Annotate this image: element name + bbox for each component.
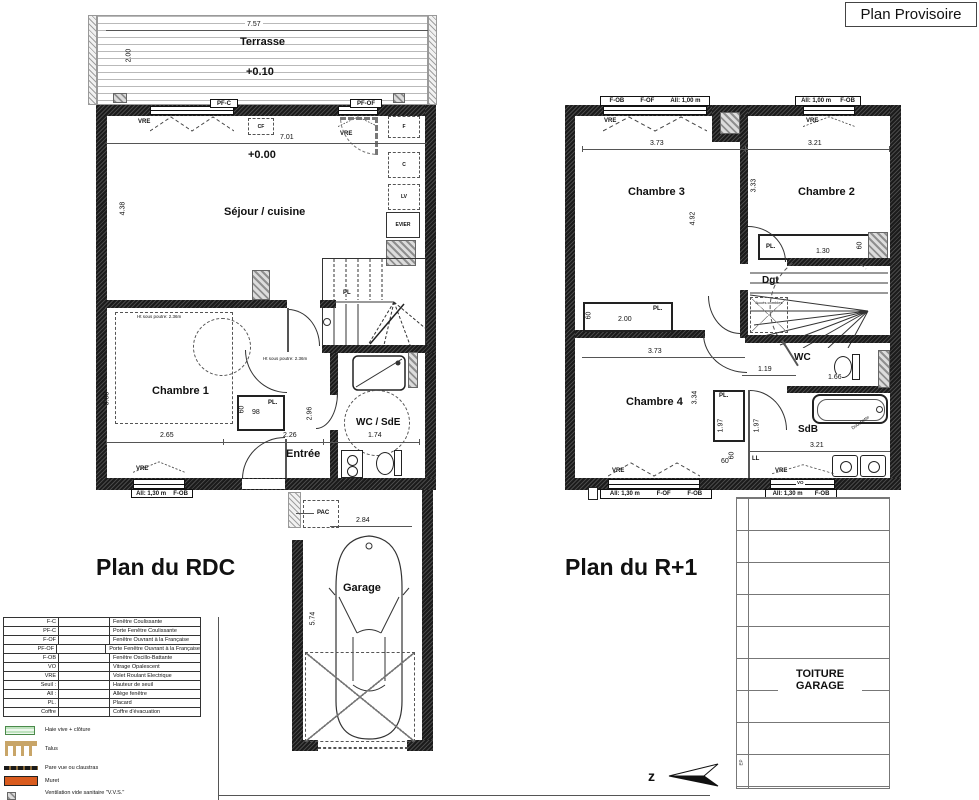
sejour-label: Séjour / cuisine: [224, 206, 305, 218]
wall-segment: [96, 300, 287, 308]
dimension: 2.26: [283, 432, 297, 439]
window-type: F-OB: [815, 491, 830, 497]
legend-spacer: [59, 618, 110, 626]
dimension: 1.97: [717, 419, 724, 433]
shutter-icon: [603, 116, 707, 132]
legend-row: PF-CPorte Fenêtre Coulissante: [4, 627, 200, 636]
cupboard-label: C: [402, 162, 406, 168]
chambre1-label: Chambre 1: [152, 385, 209, 397]
coffre-box: CF: [248, 118, 274, 135]
terrasse-deck: [97, 15, 428, 105]
door-arc: [242, 437, 285, 479]
dimension: 60: [585, 312, 592, 320]
legend-code: VO: [4, 663, 59, 671]
legend-code: PF-OF: [4, 645, 57, 653]
shutter-icon: [150, 116, 234, 132]
dimension: 3.73: [650, 140, 664, 147]
fridge-box: F: [388, 116, 420, 138]
legend-code: PL.: [4, 699, 59, 707]
dimension: 2.00: [125, 49, 132, 63]
legend-desc: Allège fenêtre: [110, 690, 200, 698]
legend-code: PF-C: [4, 627, 59, 635]
legend-desc: Porte Fenêtre Ouvrant à la Française: [106, 645, 200, 653]
terrasse-label: Terrasse: [240, 36, 285, 48]
wall-segment: [320, 300, 336, 308]
dim-line: [106, 143, 427, 144]
wall-segment: [425, 105, 436, 490]
dimension: 3.34: [691, 391, 698, 405]
toilet-tank-icon: [394, 450, 402, 476]
legend-code: VRE: [4, 672, 59, 680]
legend-spacer: [57, 645, 106, 653]
legend-row: All :Allège fenêtre: [4, 690, 200, 699]
north-label: z: [648, 768, 655, 784]
legend-desc: Porte Fenêtre Coulissante: [110, 627, 200, 635]
vre-tag: VRE: [806, 118, 818, 124]
dim-line: [582, 149, 890, 150]
window: [603, 106, 707, 115]
placard-tag: PL.: [653, 306, 662, 312]
floorplan-sheet: Plan Provisoire 7.57 Terrasse +0.10 2.00…: [0, 0, 979, 800]
drain-icon: [876, 406, 883, 413]
window-type: PF-C: [217, 101, 231, 107]
window-type-label: PF-OF: [350, 99, 382, 108]
door-arc: [708, 296, 740, 334]
wall-segment: [113, 93, 127, 103]
legend-row: PL.Placard: [4, 699, 200, 708]
wall-segment: [740, 116, 748, 264]
legend-row: F-CFenêtre Coulissante: [4, 618, 200, 627]
wall-segment: [330, 430, 338, 480]
stairs-placard-tag: PL: [343, 290, 351, 296]
toiture-line1: TOITURE: [778, 668, 862, 680]
window-type-label: F-OB F-OF All: 1,00 m: [600, 96, 710, 106]
allege-label: All: 1,00 m: [670, 98, 700, 104]
garage-label: Garage: [343, 582, 381, 594]
legend-desc: Fenêtre Coulissante: [110, 618, 200, 626]
legend-spacer: [59, 690, 110, 698]
dimension: 3.21: [808, 140, 822, 147]
wall-segment: [96, 105, 436, 116]
legend-code: Coffre: [4, 708, 59, 716]
sejour-level: +0.00: [248, 149, 276, 161]
toilet-tank-icon: [852, 354, 860, 380]
dimension: 2.84: [356, 517, 370, 524]
legend-symbol-label: Haie vive + clôture: [45, 727, 90, 733]
allege-label: All: 1,30 m: [773, 491, 803, 497]
dimension: 60: [238, 406, 245, 414]
vvs-swatch-icon: [7, 792, 16, 800]
dimension: 1.19: [758, 366, 772, 373]
sink-box: EVIER: [386, 212, 420, 238]
wall-segment: [740, 290, 748, 338]
window-type: F-OB: [610, 98, 625, 104]
legend-row: VOVitrage Opalescent: [4, 663, 200, 672]
door-arc: [288, 309, 320, 346]
wall-segment: [428, 15, 437, 105]
window-type: PF-OF: [357, 101, 375, 107]
window-type: F-OF: [657, 491, 671, 497]
dimension: 2.96: [306, 407, 313, 421]
terrasse-level: +0.10: [246, 66, 274, 78]
reserved-area-outline: [305, 652, 415, 742]
legend-spacer: [59, 681, 110, 689]
dimension: 4.38: [119, 202, 126, 216]
toiture-line2: GARAGE: [778, 680, 862, 692]
legend-desc: Fenêtre Oscillo-Battante: [110, 654, 200, 662]
clearance-circle: [193, 318, 251, 376]
wall-segment: [252, 270, 270, 300]
door-arc: [340, 117, 378, 155]
washer-tag: LL: [752, 456, 759, 462]
legend-code: F-OF: [4, 636, 59, 644]
wall-segment: [565, 105, 575, 490]
vre-tag: VRE: [775, 468, 787, 474]
legend-code: All :: [4, 690, 59, 698]
dimension: 1.66: [828, 374, 842, 381]
legend-spacer: [59, 663, 110, 671]
wall-segment: [292, 540, 303, 750]
door-arc: [245, 350, 287, 393]
legend-code: F-OB: [4, 654, 59, 662]
placard-tag: PL.: [268, 400, 277, 406]
ep-tag: EP: [739, 759, 744, 765]
downspout-icon: [588, 487, 598, 500]
window-type: F-OB: [687, 491, 702, 497]
window-type-label: All: 1,30 m F-OF F-OB: [600, 489, 712, 499]
knob-icon: [347, 466, 358, 477]
legend-code: F-C: [4, 618, 59, 626]
dimension: 1.30: [816, 248, 830, 255]
legend-spacer: [59, 708, 110, 716]
legend-row: PF-OFPorte Fenêtre Ouvrant à la Français…: [4, 645, 200, 654]
plan-provisoire-stamp: Plan Provisoire: [845, 2, 977, 27]
wc-label: WC: [794, 352, 811, 363]
dimension: 2.00: [618, 316, 632, 323]
dimension: 7.01: [278, 134, 296, 141]
legend-symbol-label: Muret: [45, 778, 59, 784]
window: [608, 479, 700, 489]
dim-tick: [323, 439, 324, 445]
wall-segment: [745, 335, 890, 343]
door-arc: [316, 393, 338, 429]
bathtub-icon: [812, 394, 888, 424]
dimension: 2.65: [160, 432, 174, 439]
toilet-icon: [376, 452, 394, 475]
north-arrow-icon: [668, 762, 720, 788]
dim-tick: [223, 439, 224, 445]
coffre-label: CF: [258, 124, 265, 130]
vo-tag: VO: [796, 480, 805, 485]
wall-segment: [393, 93, 405, 103]
legend-desc: Coffre d'évacuation: [110, 708, 200, 716]
window-type: F-OB: [840, 98, 855, 104]
talus-teeth-icon: [5, 746, 37, 756]
leader-line: [296, 513, 314, 514]
wall-segment: [288, 492, 301, 528]
knob-icon: [347, 455, 358, 466]
dim-line: [748, 451, 890, 452]
dim-line: [106, 30, 428, 31]
dishwasher-label: LV: [401, 194, 407, 200]
door-opening: [242, 479, 285, 489]
basin-icon: [840, 461, 852, 473]
cupboard-box: C: [388, 152, 420, 178]
entree-label: Entrée: [286, 448, 320, 460]
dim-line: [582, 357, 745, 358]
wcsde-label: WC / SdE: [356, 417, 400, 428]
window: [803, 106, 855, 115]
washing-machine-icon: [341, 450, 363, 478]
window-type: F-OB: [173, 491, 188, 497]
dimension: 5.74: [309, 612, 316, 626]
legend-row: VREVolet Roulant Electrique: [4, 672, 200, 681]
vre-tag: VRE: [138, 119, 150, 125]
attic-access-label: Accès combles: [752, 300, 786, 305]
chambre3-label: Chambre 3: [628, 186, 685, 198]
door-arc: [703, 334, 747, 373]
pac-label: PAC: [317, 510, 329, 516]
window: [133, 479, 185, 489]
legend-spacer: [59, 672, 110, 680]
chambre2-label: Chambre 2: [798, 186, 855, 198]
garage-roof: [748, 497, 890, 789]
r1-title: Plan du R+1: [565, 554, 697, 581]
allege-label: All: 1,00 m: [801, 98, 831, 104]
legend-symbol-label: Ventilation vide sanitaire "V.V.S.": [45, 790, 135, 796]
dim-tick: [745, 146, 746, 152]
dimension: 7.57: [245, 21, 263, 28]
sink-icon: [832, 455, 858, 477]
hedge-swatch-icon: [5, 726, 35, 735]
vre-tag: VRE: [136, 466, 148, 472]
legend-table: F-CFenêtre Coulissante PF-CPorte Fenêtre…: [3, 617, 201, 717]
allege-label: All: 1,30 m: [136, 491, 166, 497]
wall-segment: [878, 350, 890, 388]
staircase-icon: [322, 258, 426, 346]
wall-segment: [322, 345, 436, 353]
legend-symbol-label: Talus: [45, 746, 58, 752]
window-type: F-OF: [640, 98, 654, 104]
legend-desc: Vitrage Opalescent: [110, 663, 200, 671]
muret-swatch-icon: [4, 776, 38, 786]
allege-label: All: 1,30 m: [610, 491, 640, 497]
dim-tick: [582, 146, 583, 152]
duct-core: [720, 112, 740, 134]
legend-desc: Placard: [110, 699, 200, 707]
dimension: 4.92: [689, 212, 696, 226]
rdc-title: Plan du RDC: [96, 554, 235, 581]
dimension: 3.21: [810, 442, 824, 449]
placard-box: [713, 390, 745, 442]
wall-segment: [330, 353, 338, 395]
basin-icon: [868, 461, 880, 473]
dim-tick: [889, 146, 890, 152]
legend-symbol-label: Pare vue ou claustras: [45, 765, 98, 771]
door-arc: [750, 390, 787, 430]
wall-segment: [422, 490, 433, 750]
dim-tick: [419, 439, 420, 445]
legend-row: Seuil :Hauteur de seuil: [4, 681, 200, 690]
sink-label: EVIER: [395, 222, 410, 228]
wall-segment: [890, 105, 901, 490]
sheet-border: [218, 795, 710, 796]
dimension: 98: [252, 409, 260, 416]
toiture-label: TOITURE GARAGE: [778, 668, 862, 692]
placard-tag: PL.: [719, 393, 728, 399]
dimension: 3.73: [648, 348, 662, 355]
dgt-label: Dgt: [762, 275, 779, 286]
wall-segment: [787, 386, 890, 393]
legend-desc: Volet Roulant Electrique: [110, 672, 200, 680]
legend-row: F-OBFenêtre Oscillo-Battante: [4, 654, 200, 663]
garage-door-line: [318, 747, 408, 749]
wall-segment: [287, 308, 289, 352]
door-arc: [748, 226, 786, 262]
dimension: 3.33: [750, 179, 757, 193]
vre-tag: VRE: [612, 468, 624, 474]
dim-tick: [106, 439, 107, 445]
legend-spacer: [59, 636, 110, 644]
legend-spacer: [59, 654, 110, 662]
bathtub-inner: [817, 399, 885, 421]
legend-code: Seuil :: [4, 681, 59, 689]
wall-segment: [96, 105, 107, 490]
legend-row: F-OFFenêtre Ouvrant à la Française: [4, 636, 200, 645]
wall-segment: [408, 352, 418, 388]
window-type-label: All: 1,00 m F-OB: [795, 96, 861, 106]
dimension: 60: [728, 452, 735, 460]
sheet-border: [218, 617, 219, 800]
dimension: 3.88: [103, 392, 110, 406]
window-type-label: All: 1,30 m F-OB: [131, 489, 193, 498]
legend-spacer: [59, 699, 110, 707]
window-type-label: PF-C: [210, 99, 238, 108]
legend-desc: Fenêtre Ouvrant à la Française: [110, 636, 200, 644]
dimension: 60: [856, 242, 863, 250]
dishwasher-box: LV: [388, 184, 420, 210]
dim-line: [330, 526, 412, 527]
wall-segment: [88, 15, 97, 105]
legend-row: CoffreCoffre d'évacuation: [4, 708, 200, 716]
fridge-label: F: [402, 124, 405, 130]
chambre4-label: Chambre 4: [626, 396, 683, 408]
sink-icon: [860, 455, 886, 477]
shower-icon: [352, 355, 406, 391]
screen-swatch-icon: [4, 766, 38, 770]
vre-tag: VRE: [604, 118, 616, 124]
dim-line: [742, 375, 796, 376]
legend-desc: Hauteur de seuil: [110, 681, 200, 689]
legend-spacer: [59, 627, 110, 635]
sdb-label: SdB: [798, 424, 818, 435]
